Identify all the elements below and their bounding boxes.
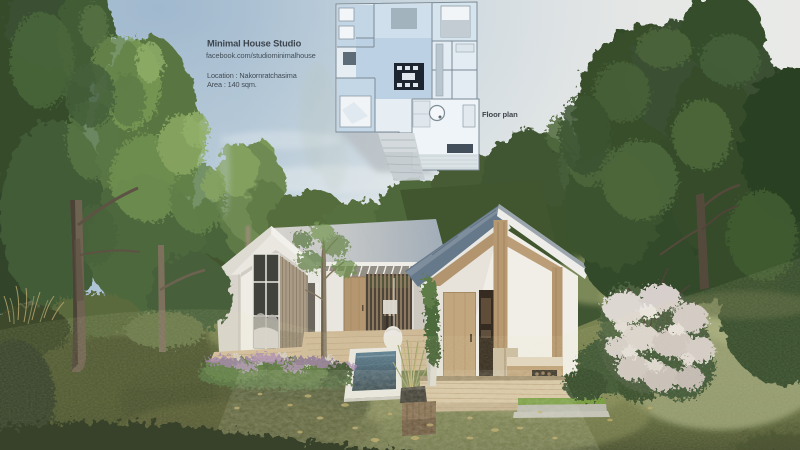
svg-text:Location : Nakornratchasima: Location : Nakornratchasima bbox=[207, 71, 298, 80]
svg-text:facebook.com/studiominimalhous: facebook.com/studiominimalhouse bbox=[206, 51, 316, 60]
svg-text:Minimal House Studio: Minimal House Studio bbox=[207, 39, 302, 49]
svg-text:Floor plan: Floor plan bbox=[482, 110, 518, 119]
svg-text:Area : 140 sqm.: Area : 140 sqm. bbox=[207, 80, 257, 89]
